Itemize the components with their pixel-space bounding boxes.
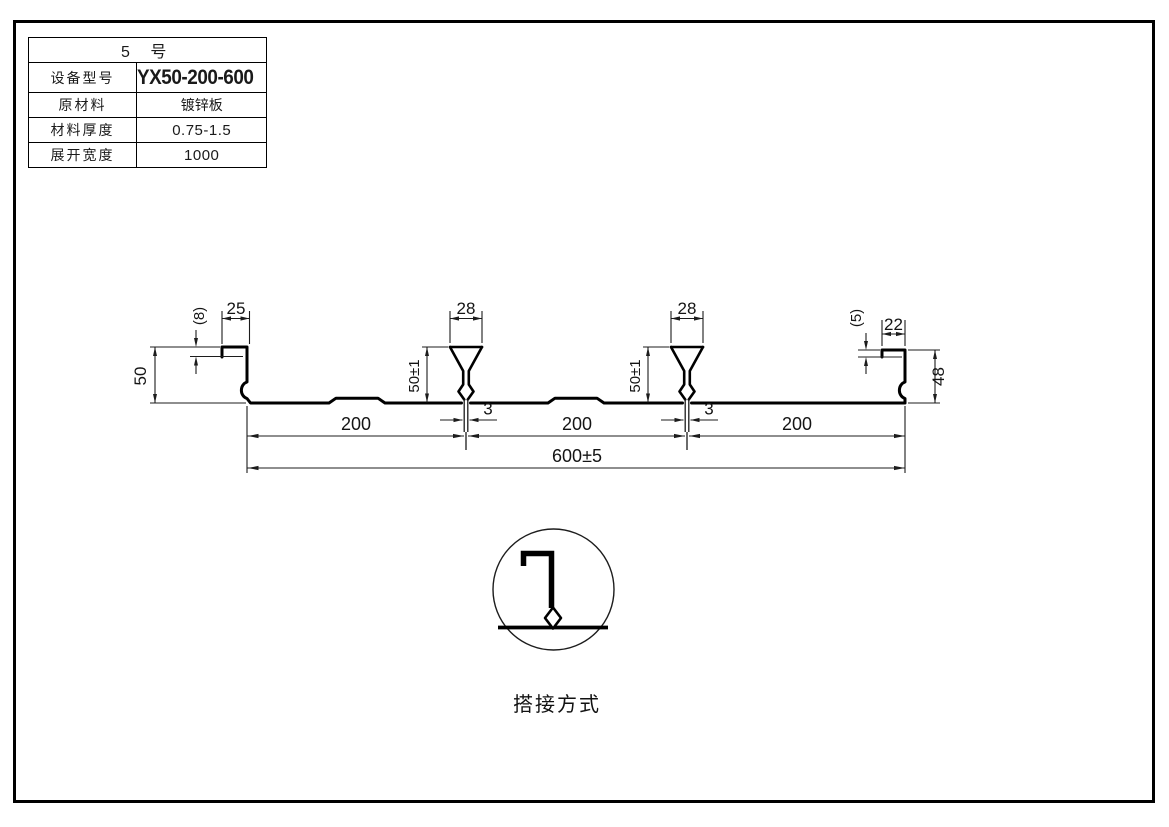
dim-left-edge-drop-label: (8)	[191, 307, 208, 325]
dim-right-tab-label: 22	[884, 315, 903, 334]
dim-right-height-label: 48	[929, 367, 948, 386]
lap-joint-detail: 搭接方式	[493, 529, 614, 716]
detail-seam-diamond	[545, 608, 561, 629]
rib-2-stem	[685, 400, 689, 451]
dim-overall-width-label: 600±5	[552, 446, 602, 466]
dim-left-height-label: 50	[131, 367, 150, 386]
dim-overall-width: 600±5	[248, 446, 906, 470]
dim-rib1-stem-label: 3	[483, 400, 492, 419]
dim-left-height: 50	[131, 347, 246, 403]
dim-left-tab: 25	[222, 299, 250, 344]
dim-left-tab-label: 25	[227, 299, 246, 318]
dim-pitch-3-label: 200	[782, 414, 812, 434]
dim-rib2-height-label: 50±1	[627, 359, 644, 392]
dim-pitch-2-label: 200	[562, 414, 592, 434]
dim-right-edge-drop-label: (5)	[848, 309, 865, 327]
profile-pan-middle	[471, 398, 683, 403]
detail-caption: 搭接方式	[513, 693, 601, 716]
dim-pitch-1-label: 200	[341, 414, 371, 434]
dimension-annotations: 25 (8) 50 28	[131, 299, 948, 473]
dim-rib1-top-width: 28	[450, 299, 482, 343]
profile-drawing: 25 (8) 50 28	[0, 0, 1169, 827]
dim-rib2-top-width-label: 28	[678, 299, 697, 318]
dim-rib1-height: 50±1	[406, 347, 448, 403]
dim-rib2-top-width: 28	[671, 299, 703, 343]
dim-rib2-stem-label: 3	[704, 400, 713, 419]
dim-rib1-height-label: 50±1	[406, 359, 423, 392]
profile-right-leg	[882, 350, 905, 403]
dim-right-height: 48	[908, 350, 948, 403]
dim-right-tab: 22	[882, 315, 905, 346]
rib-1-stem	[464, 400, 468, 451]
detail-hook-leg	[524, 554, 552, 609]
dim-rib1-top-width-label: 28	[457, 299, 476, 318]
drawing-sheet: 5 号 设备型号 YX50-200-600 原材料 镀锌板 材料厚度 0.75-…	[0, 0, 1169, 827]
profile-outline	[222, 347, 905, 450]
dim-rib2-height: 50±1	[627, 347, 669, 403]
